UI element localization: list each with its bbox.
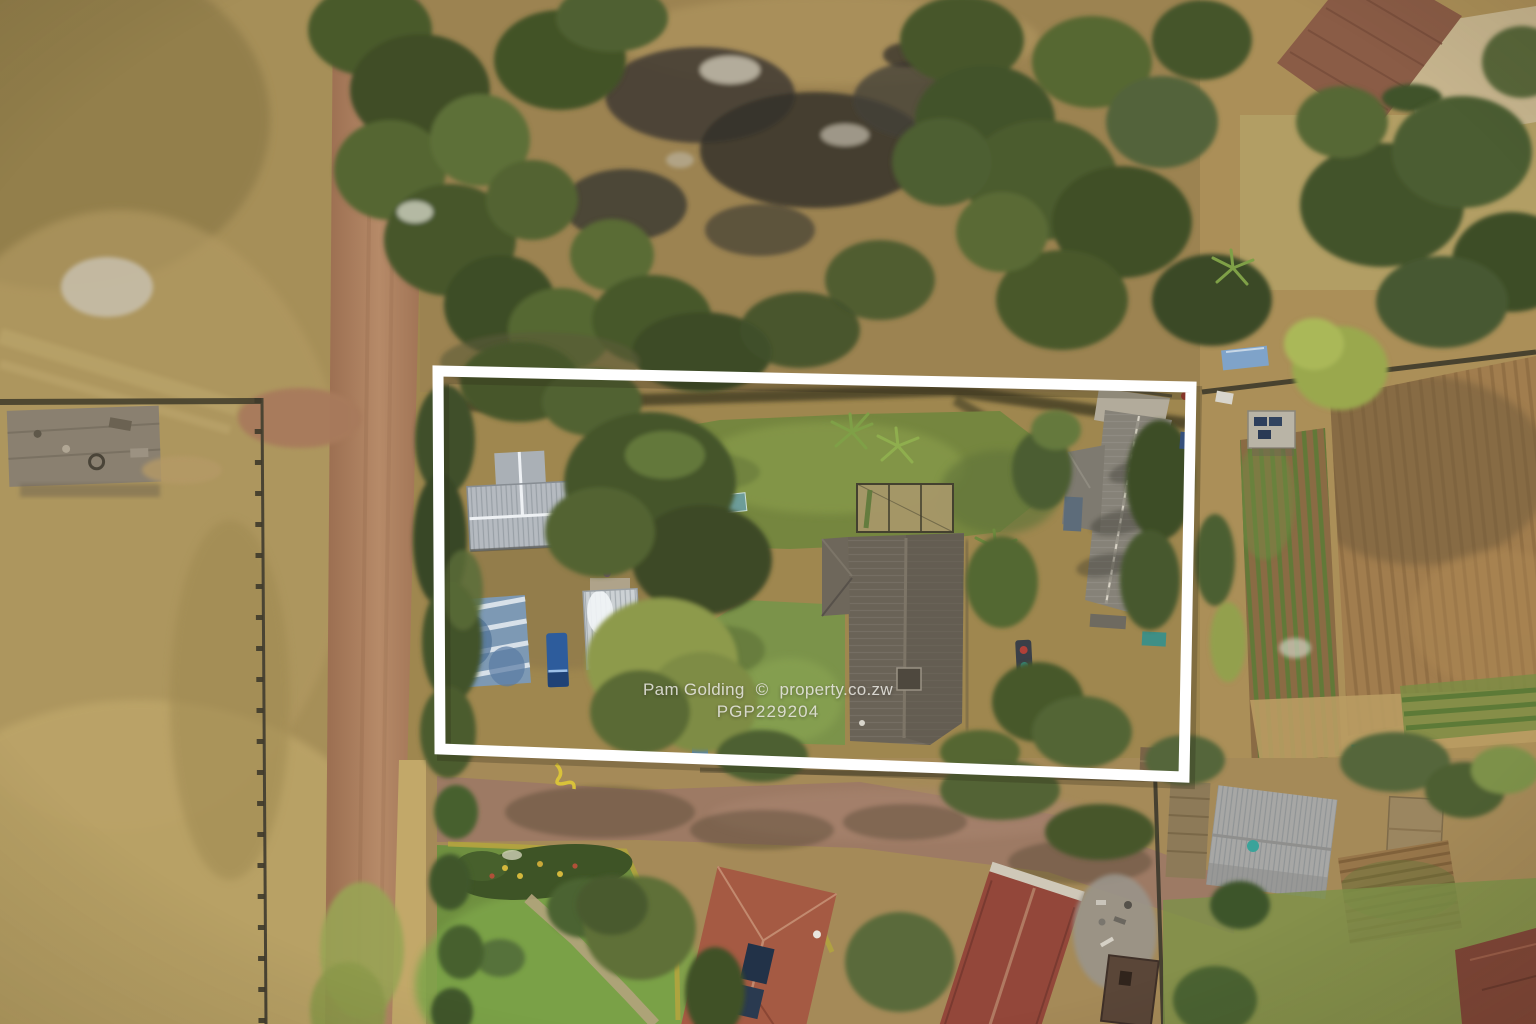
vignette	[0, 0, 1536, 1024]
aerial-photo: Pam Golding©property.co.zw PGP229204	[0, 0, 1536, 1024]
aerial-photo-scene	[0, 0, 1536, 1024]
